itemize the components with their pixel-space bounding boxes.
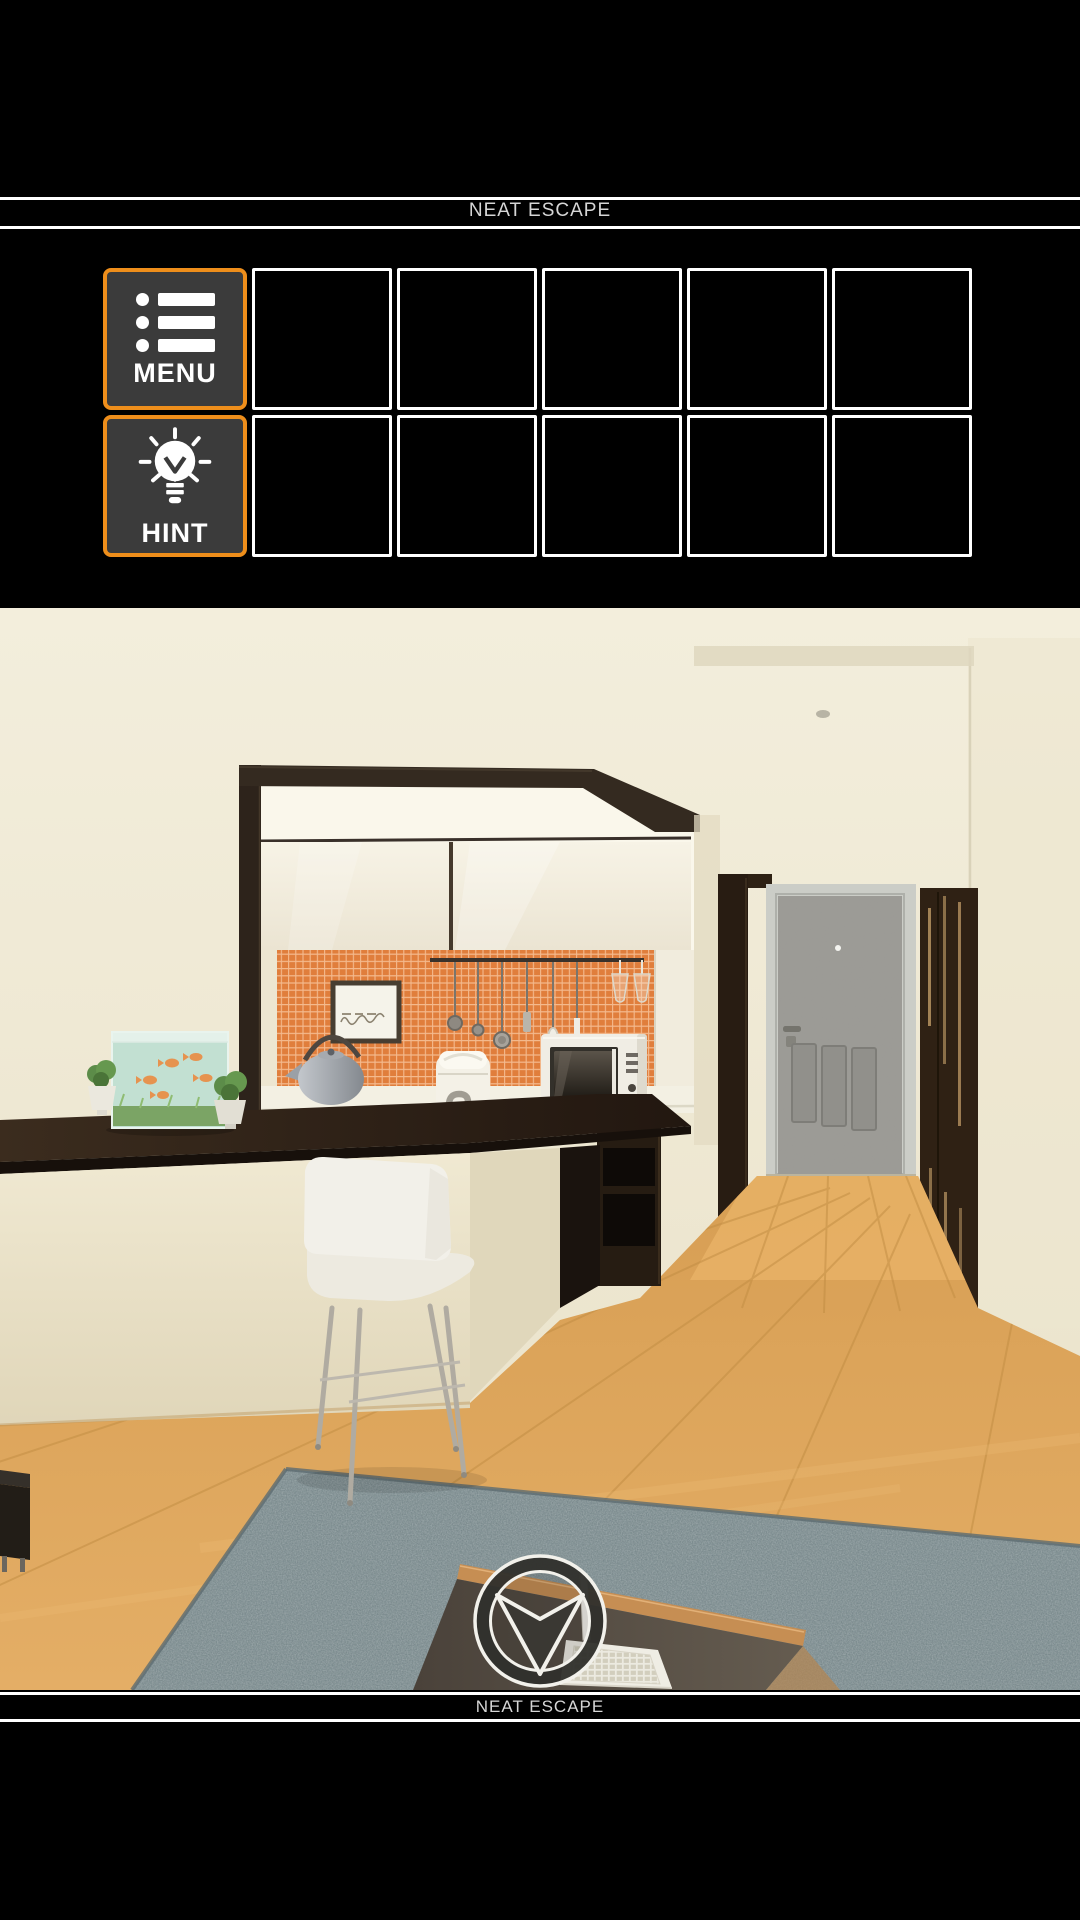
inventory-slot[interactable] — [397, 268, 537, 410]
door-handle[interactable] — [783, 1026, 801, 1032]
inventory-slot[interactable] — [832, 415, 972, 557]
ceiling-light — [816, 710, 830, 718]
side-stool[interactable] — [0, 1470, 30, 1572]
inventory-slot[interactable] — [542, 415, 682, 557]
inventory-slot[interactable] — [252, 268, 392, 410]
inventory-slot[interactable] — [542, 268, 682, 410]
inventory-slot[interactable] — [832, 268, 972, 410]
hint-button[interactable]: HINT — [103, 415, 247, 557]
bulb-icon — [131, 424, 219, 512]
counter-shelf-unit[interactable] — [597, 1116, 661, 1286]
inventory-slot[interactable] — [397, 415, 537, 557]
inventory-slot[interactable] — [252, 415, 392, 557]
bottom-divider-line-2 — [0, 1719, 1080, 1722]
aquarium-grass — [113, 1106, 227, 1126]
top-brand-text: NEAT ESCAPE — [0, 200, 1080, 222]
game-screen: NEAT ESCAPE MENU — [0, 0, 1080, 1920]
menu-button[interactable]: MENU — [103, 268, 247, 410]
bottom-brand-text: NEAT ESCAPE — [0, 1697, 1080, 1717]
inventory-slot[interactable] — [687, 268, 827, 410]
peephole — [835, 945, 841, 951]
down-arrow-button[interactable] — [474, 1555, 606, 1687]
right-near-wall — [968, 638, 1080, 1328]
bottom-divider-line-1 — [0, 1692, 1080, 1695]
inventory-row-2: HINT — [103, 415, 972, 557]
top-divider-line-2 — [0, 226, 1080, 229]
room-scene[interactable] — [0, 608, 1080, 1690]
hallway-soffit-shadow — [694, 646, 974, 666]
picture-frame[interactable] — [333, 983, 399, 1041]
list-icon — [136, 293, 215, 352]
inventory-row-1: MENU — [103, 268, 972, 410]
inventory-slot[interactable] — [687, 415, 827, 557]
menu-button-label: MENU — [133, 358, 217, 389]
kitchen-alcove[interactable] — [239, 765, 720, 1145]
inventory-panel: MENU — [103, 268, 972, 557]
entrance-door[interactable] — [766, 884, 916, 1182]
hint-button-label: HINT — [142, 518, 209, 549]
